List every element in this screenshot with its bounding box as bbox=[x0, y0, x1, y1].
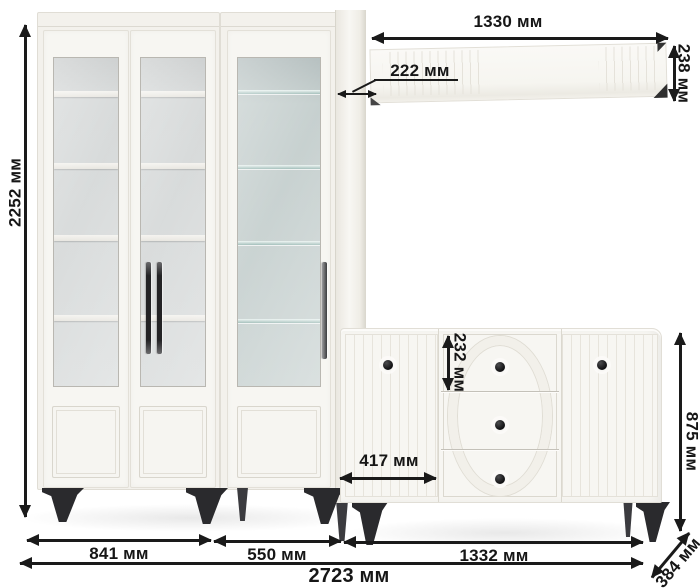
cabinet-double-glass-door bbox=[37, 12, 220, 490]
door-lower-panel bbox=[139, 406, 207, 478]
shelf-shadow bbox=[653, 84, 667, 98]
sideboard-knob bbox=[597, 360, 607, 370]
dim-label-door-width: 417 мм bbox=[358, 451, 420, 470]
glass-shelf bbox=[238, 165, 320, 169]
glass-panel-display bbox=[237, 57, 321, 387]
shelf-shadow bbox=[371, 97, 381, 105]
cabinet-single-glass-door bbox=[220, 12, 337, 490]
cabinet-shelf bbox=[54, 315, 118, 321]
glass-shelf bbox=[238, 241, 320, 245]
dim-label-sideboard-height: 875 мм bbox=[683, 411, 700, 473]
drawer-knob bbox=[495, 420, 505, 430]
door-lower-panel bbox=[237, 406, 321, 478]
cabinet-shelf bbox=[141, 235, 205, 241]
dim-label-shelf-height: 238 мм bbox=[675, 43, 694, 105]
dim-arrow-door-width bbox=[340, 477, 436, 480]
shelf-grooves bbox=[598, 46, 657, 91]
door-lower-panel bbox=[52, 406, 120, 478]
cabinet-shelf bbox=[54, 163, 118, 169]
dim-label-shelf-depth: 222 мм bbox=[389, 61, 451, 80]
door-handle bbox=[157, 262, 162, 354]
furniture-diagram: 2252 мм 1330 мм 238 мм 222 мм 232 мм 417… bbox=[0, 0, 700, 588]
drawer bbox=[441, 449, 559, 500]
sideboard-knob bbox=[383, 360, 393, 370]
dim-label-right-cabinet-width: 550 мм bbox=[246, 545, 308, 564]
door-handle bbox=[146, 262, 151, 354]
dim-arrow-shelf-depth bbox=[338, 93, 376, 95]
dim-label-sideboard-width: 1332 мм bbox=[459, 546, 529, 565]
drawer-knob bbox=[495, 362, 505, 372]
glass-door bbox=[227, 30, 331, 488]
cabinet-shelf bbox=[141, 91, 205, 97]
shelf-shadow bbox=[657, 43, 666, 52]
dim-arrow-right-cabinet-width bbox=[214, 540, 341, 543]
dim-label-left-cabinet-width: 841 мм bbox=[88, 544, 150, 563]
door-handle bbox=[322, 262, 327, 359]
dim-arrow-total-height bbox=[24, 25, 27, 517]
glass-door bbox=[43, 30, 129, 488]
glass-shelf bbox=[238, 319, 320, 323]
dim-label-total-width: 2723 мм bbox=[307, 566, 391, 587]
dim-label-shelf-width: 1330 мм bbox=[472, 12, 544, 31]
glass-panel bbox=[53, 57, 119, 387]
cabinet-shelf bbox=[54, 91, 118, 97]
cabinet-shelf bbox=[141, 163, 205, 169]
sideboard-right-door bbox=[562, 334, 658, 497]
drawer bbox=[441, 391, 559, 450]
dim-label-total-height: 2252 мм bbox=[6, 156, 25, 230]
drawer-knob bbox=[495, 474, 505, 484]
glass-door bbox=[130, 30, 216, 488]
dim-arrow-shelf-width bbox=[372, 37, 668, 40]
dim-arrow-left-cabinet-width bbox=[27, 539, 211, 542]
dim-label-drawer-height: 232 мм bbox=[451, 332, 470, 394]
glass-shelf bbox=[238, 90, 320, 94]
cabinet-shelf bbox=[54, 235, 118, 241]
dim-arrow-sideboard-width bbox=[344, 541, 643, 544]
